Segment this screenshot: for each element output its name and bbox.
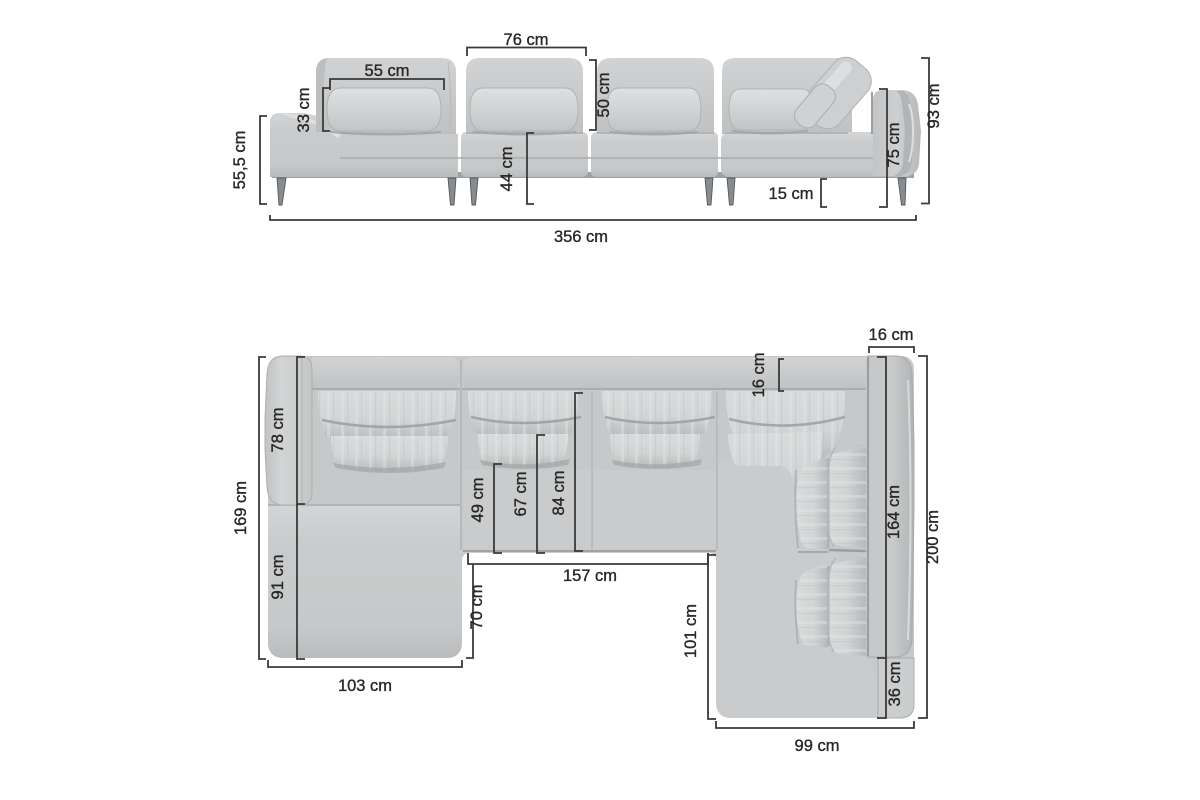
svg-text:76 cm: 76 cm xyxy=(504,31,549,49)
svg-text:200 cm: 200 cm xyxy=(924,510,942,564)
svg-text:164 cm: 164 cm xyxy=(885,485,903,539)
svg-text:33 cm: 33 cm xyxy=(295,88,313,133)
svg-text:103 cm: 103 cm xyxy=(338,677,392,695)
svg-text:356 cm: 356 cm xyxy=(554,228,608,246)
svg-text:157 cm: 157 cm xyxy=(563,567,617,585)
svg-text:84 cm: 84 cm xyxy=(550,471,568,516)
svg-text:55,5 cm: 55,5 cm xyxy=(231,131,249,190)
svg-text:93 cm: 93 cm xyxy=(925,84,943,129)
svg-text:36 cm: 36 cm xyxy=(886,662,904,707)
svg-text:70 cm: 70 cm xyxy=(468,585,486,630)
svg-text:67 cm: 67 cm xyxy=(512,472,530,517)
svg-text:44 cm: 44 cm xyxy=(498,147,516,192)
svg-text:78 cm: 78 cm xyxy=(269,408,287,453)
svg-text:16 cm: 16 cm xyxy=(869,326,914,344)
svg-text:99 cm: 99 cm xyxy=(795,737,840,755)
svg-text:101 cm: 101 cm xyxy=(682,604,700,658)
svg-text:169 cm: 169 cm xyxy=(232,481,250,535)
svg-text:15 cm: 15 cm xyxy=(769,185,814,203)
svg-text:91 cm: 91 cm xyxy=(269,555,287,600)
svg-text:49 cm: 49 cm xyxy=(469,478,487,523)
svg-text:16 cm: 16 cm xyxy=(750,353,768,398)
svg-text:55 cm: 55 cm xyxy=(365,62,410,80)
svg-text:75 cm: 75 cm xyxy=(885,123,903,168)
svg-text:50 cm: 50 cm xyxy=(595,73,613,118)
